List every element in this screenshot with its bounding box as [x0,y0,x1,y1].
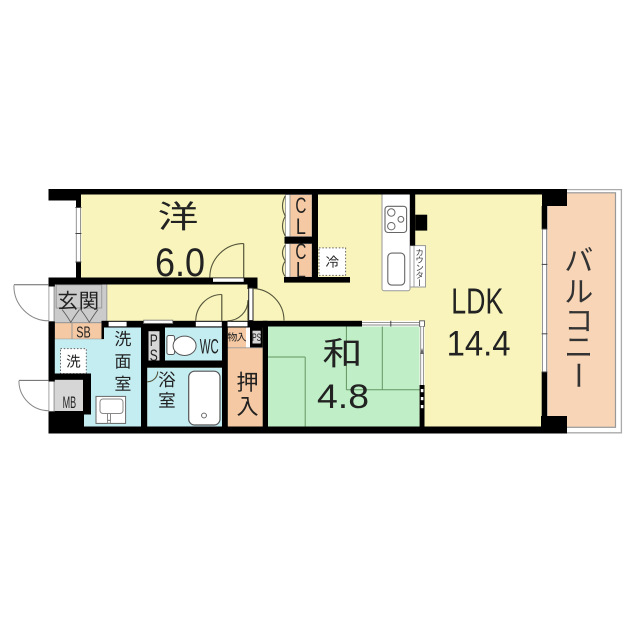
svg-text:SB: SB [76,324,91,341]
svg-text:L: L [296,214,306,239]
svg-text:4.8: 4.8 [317,378,369,416]
svg-text:WC: WC [200,335,219,359]
svg-text:PS: PS [252,332,261,344]
svg-text:14.4: 14.4 [447,325,511,364]
svg-text:MB: MB [63,393,77,412]
svg-text:LDK: LDK [451,280,503,321]
